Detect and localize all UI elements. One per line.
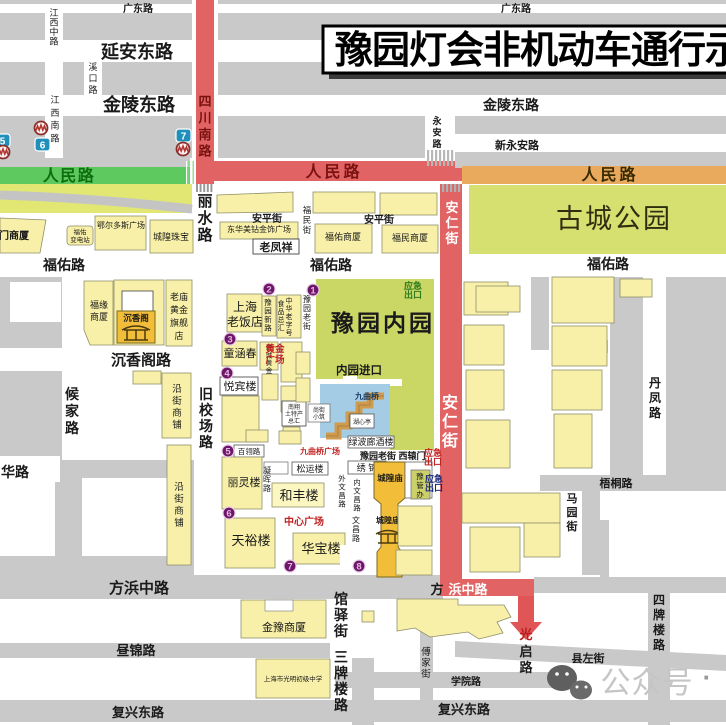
svg-text:4: 4 (224, 368, 230, 379)
svg-text:城隍庙: 城隍庙 (377, 473, 403, 483)
svg-text:店: 店 (174, 330, 183, 341)
svg-text:安平街: 安平街 (364, 213, 394, 226)
svg-text:6: 6 (226, 508, 231, 519)
svg-text:中华老字号: 中华老字号 (286, 296, 293, 337)
svg-text:金豫商厦: 金豫商厦 (262, 620, 306, 634)
svg-text:童涵春: 童涵春 (224, 346, 257, 360)
svg-text:人民路: 人民路 (43, 166, 96, 185)
svg-text:食品总汇: 食品总汇 (278, 299, 285, 332)
svg-text:6: 6 (40, 141, 46, 152)
svg-text:松运楼: 松运楼 (296, 463, 323, 474)
svg-text:沿街商铺: 沿街商铺 (172, 384, 182, 431)
svg-text:延安东路: 延安东路 (100, 41, 174, 62)
svg-text:傅家街: 傅家街 (421, 646, 431, 680)
svg-text:金陵东路: 金陵东路 (482, 97, 540, 113)
svg-text:金陵东路: 金陵东路 (102, 94, 176, 115)
svg-text:鄂尔多斯广场: 鄂尔多斯广场 (97, 220, 145, 230)
svg-text:广东路: 广东路 (501, 2, 532, 15)
svg-text:黄金: 黄金 (170, 304, 188, 315)
svg-text:复兴东路: 复兴东路 (111, 705, 165, 720)
svg-text:内园进口: 内园进口 (336, 363, 382, 377)
svg-text:福民商厦: 福民商厦 (392, 232, 428, 243)
svg-text:九曲桥广场: 九曲桥广场 (299, 446, 340, 456)
svg-text:福佑路: 福佑路 (309, 257, 353, 273)
svg-text:旧校场路: 旧校场路 (199, 386, 214, 450)
svg-text:南翔: 南翔 (288, 403, 300, 411)
svg-text:公众号: 公众号 (601, 667, 694, 700)
svg-text:·: · (703, 662, 712, 692)
svg-text:土特产: 土特产 (285, 410, 303, 418)
svg-text:城隍珠宝: 城隍珠宝 (153, 231, 189, 242)
svg-text:沉香阁路: 沉香阁路 (111, 351, 172, 369)
svg-text:悦宾楼: 悦宾楼 (224, 379, 257, 393)
svg-text:3: 3 (227, 334, 232, 345)
svg-text:马园街: 马园街 (566, 492, 578, 533)
svg-text:天裕楼: 天裕楼 (231, 533, 270, 548)
svg-text:出口: 出口 (425, 482, 443, 493)
svg-text:江西中路: 江西中路 (49, 8, 58, 47)
svg-text:安平街: 安平街 (252, 212, 282, 225)
svg-text:福佑: 福佑 (74, 227, 88, 236)
svg-text:7: 7 (287, 561, 292, 572)
svg-text:城隍庙: 城隍庙 (376, 515, 400, 525)
svg-text:沿街商铺: 沿街商铺 (174, 482, 184, 529)
svg-text:绿波廊酒楼: 绿波廊酒楼 (348, 436, 393, 447)
svg-text:中心广场: 中心广场 (284, 515, 324, 528)
svg-text:凝晖路: 凝晖路 (263, 465, 271, 493)
svg-text:5: 5 (225, 446, 231, 457)
svg-text:沉香阁: 沉香阁 (123, 313, 149, 323)
svg-text:8: 8 (356, 561, 361, 572)
svg-text:黄金: 黄金 (265, 343, 285, 355)
svg-text:7: 7 (181, 132, 187, 143)
svg-text:门商厦: 门商厦 (0, 229, 30, 242)
svg-text:小筑: 小筑 (313, 413, 325, 421)
svg-text:外文昌路: 外文昌路 (338, 473, 346, 509)
svg-text:浜中路: 浜中路 (448, 582, 488, 597)
svg-text:老庙: 老庙 (170, 291, 188, 302)
svg-text:馆驿街: 馆驿街 (333, 591, 349, 639)
svg-text:复兴东路: 复兴东路 (437, 702, 491, 717)
svg-text:上海: 上海 (233, 299, 257, 314)
svg-text:广场: 广场 (265, 354, 285, 366)
svg-text:启: 启 (519, 644, 532, 659)
svg-text:华宝楼: 华宝楼 (301, 541, 340, 556)
svg-text:豫管办: 豫管办 (416, 471, 424, 499)
svg-text:出口: 出口 (404, 289, 422, 300)
svg-text:1: 1 (310, 285, 316, 296)
svg-text:古城公园: 古城公园 (556, 204, 672, 234)
svg-text:尚街: 尚街 (313, 406, 325, 414)
svg-text:内文昌路: 内文昌路 (353, 477, 361, 513)
svg-text:新永安路: 新永安路 (495, 138, 540, 152)
svg-text:总汇: 总汇 (288, 417, 300, 425)
svg-text:梧桐路: 梧桐路 (600, 476, 634, 490)
svg-text:溪口路: 溪口路 (88, 61, 97, 95)
svg-text:广东路: 广东路 (123, 2, 154, 15)
svg-text:方浜中路: 方浜中路 (109, 579, 170, 597)
svg-text:豫园内园: 豫园内园 (331, 310, 435, 336)
svg-text:路: 路 (519, 660, 533, 675)
svg-text:学院路: 学院路 (451, 675, 482, 688)
svg-text:丹凤路: 丹凤路 (649, 376, 662, 420)
svg-text:豫园新路: 豫园新路 (264, 297, 272, 333)
svg-text:湖心亭: 湖心亭 (353, 418, 371, 426)
svg-text:华路: 华路 (1, 464, 30, 480)
svg-text:丽灵楼: 丽灵楼 (228, 475, 261, 489)
svg-text:老饭店: 老饭店 (227, 315, 263, 329)
svg-text:东华美钻金饰广场: 东华美钻金饰广场 (227, 224, 291, 234)
svg-text:县左街: 县左街 (572, 651, 605, 665)
svg-text:福民街: 福民街 (303, 205, 312, 235)
svg-text:福缘: 福缘 (90, 299, 108, 310)
svg-text:四牌楼路: 四牌楼路 (653, 593, 666, 652)
svg-text:上海市光明初级中学: 上海市光明初级中学 (264, 674, 323, 683)
svg-text:三牌楼路: 三牌楼路 (334, 649, 349, 713)
svg-text:安仁街: 安仁街 (444, 200, 458, 246)
svg-text:福佑路: 福佑路 (42, 257, 86, 273)
svg-text:豫园老街: 豫园老街 (360, 450, 396, 461)
svg-text:变电站: 变电站 (70, 235, 90, 244)
svg-text:和丰楼: 和丰楼 (279, 488, 318, 503)
svg-text:文昌路: 文昌路 (352, 515, 360, 543)
svg-text:西辕门: 西辕门 (398, 450, 425, 461)
svg-text:四川南路: 四川南路 (197, 94, 212, 159)
svg-text:人民路: 人民路 (305, 162, 362, 181)
svg-text:光: 光 (518, 627, 532, 642)
svg-text:昼锦路: 昼锦路 (116, 643, 156, 658)
svg-text:福佑路: 福佑路 (586, 256, 630, 272)
svg-text:老凤祥: 老凤祥 (259, 240, 293, 254)
svg-text:豫园老街: 豫园老街 (303, 294, 311, 331)
svg-text:安仁街: 安仁街 (441, 393, 458, 450)
svg-text:旗舰: 旗舰 (170, 317, 188, 328)
svg-text:2: 2 (266, 284, 271, 295)
svg-text:方: 方 (430, 582, 443, 597)
svg-text:永安路: 永安路 (431, 115, 442, 149)
svg-text:豫园灯会非机动车通行示意图: 豫园灯会非机动车通行示意图 (335, 30, 726, 72)
svg-text:百翎路: 百翎路 (238, 446, 261, 456)
svg-text:商厦: 商厦 (90, 311, 108, 322)
svg-text:福佑商厦: 福佑商厦 (325, 231, 361, 242)
svg-text:出口: 出口 (424, 456, 442, 467)
svg-text:九曲桥: 九曲桥 (354, 391, 380, 401)
svg-text:人民路: 人民路 (581, 165, 638, 184)
svg-text:丽水路: 丽水路 (197, 193, 213, 244)
svg-text:候家路: 候家路 (65, 386, 80, 436)
